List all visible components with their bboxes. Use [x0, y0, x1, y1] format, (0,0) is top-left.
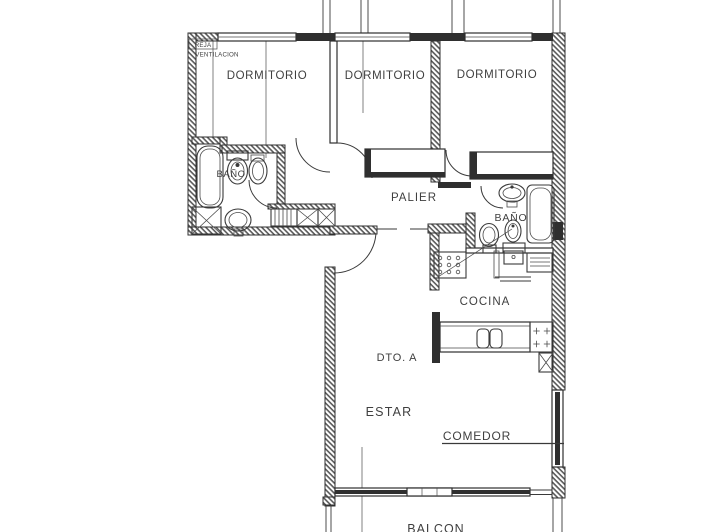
wall-entry-right	[428, 224, 470, 233]
label-comedor: COMEDOR	[443, 429, 511, 443]
wall-bath2-left	[466, 213, 475, 253]
door-entrance-arc	[334, 231, 376, 273]
bathroom1-fixtures	[192, 146, 267, 236]
label-bano-1: BAÑO	[217, 169, 246, 180]
wall-bath1-top-b	[222, 145, 285, 153]
door-entrance-leaf	[330, 226, 377, 234]
bathtub-2	[527, 185, 554, 243]
counter-corner-marks	[533, 328, 550, 347]
window-comedor	[552, 390, 563, 467]
closet-dorm3	[470, 152, 553, 179]
floorplan-svg: REJA VENTILACION DORMITORIO DORMITORIO D…	[0, 0, 720, 532]
wall-bath2-top	[438, 182, 471, 188]
label-dormitorio-2: DORMITORIO	[345, 70, 426, 82]
wall-lower-left	[325, 267, 335, 506]
label-palier: PALIER	[391, 192, 437, 204]
wall-bath1-right	[277, 153, 285, 207]
wall-balcony-foot	[323, 497, 335, 505]
label-dto-a: DTO. A	[377, 352, 418, 364]
label-estar: ESTAR	[366, 405, 413, 419]
closet-dorm2	[365, 149, 445, 177]
label-dormitorio-3: DORMITORIO	[457, 69, 538, 81]
window-dorm2	[335, 33, 410, 41]
label-reja: REJA	[195, 42, 212, 49]
bar-post	[432, 312, 440, 363]
door-dorm1	[296, 138, 330, 172]
labels-layer: REJA VENTILACION DORMITORIO DORMITORIO D…	[189, 39, 564, 532]
door-dorm3	[446, 150, 472, 176]
wall-mid-strip	[268, 204, 335, 209]
label-dormitorio-1: DORMITORIO	[227, 70, 308, 82]
wall-dorm1-dorm2	[330, 41, 337, 143]
window-dorm3	[465, 33, 532, 41]
cabinet-row-hall	[271, 209, 335, 226]
wall-right-lower	[552, 467, 565, 498]
floorplan-canvas: REJA VENTILACION DORMITORIO DORMITORIO D…	[0, 0, 720, 532]
stove-burners	[438, 256, 460, 274]
fridge	[527, 253, 553, 272]
label-cocina: COCINA	[460, 296, 511, 308]
window-dorm1	[218, 33, 296, 41]
label-bano-2: BAÑO	[495, 211, 528, 224]
counter-corner	[530, 322, 553, 352]
label-ventilacion: VENTILACION	[195, 52, 238, 59]
window-balcony	[335, 488, 552, 496]
wall-left	[188, 33, 196, 235]
label-balcon: BALCON	[407, 522, 464, 532]
